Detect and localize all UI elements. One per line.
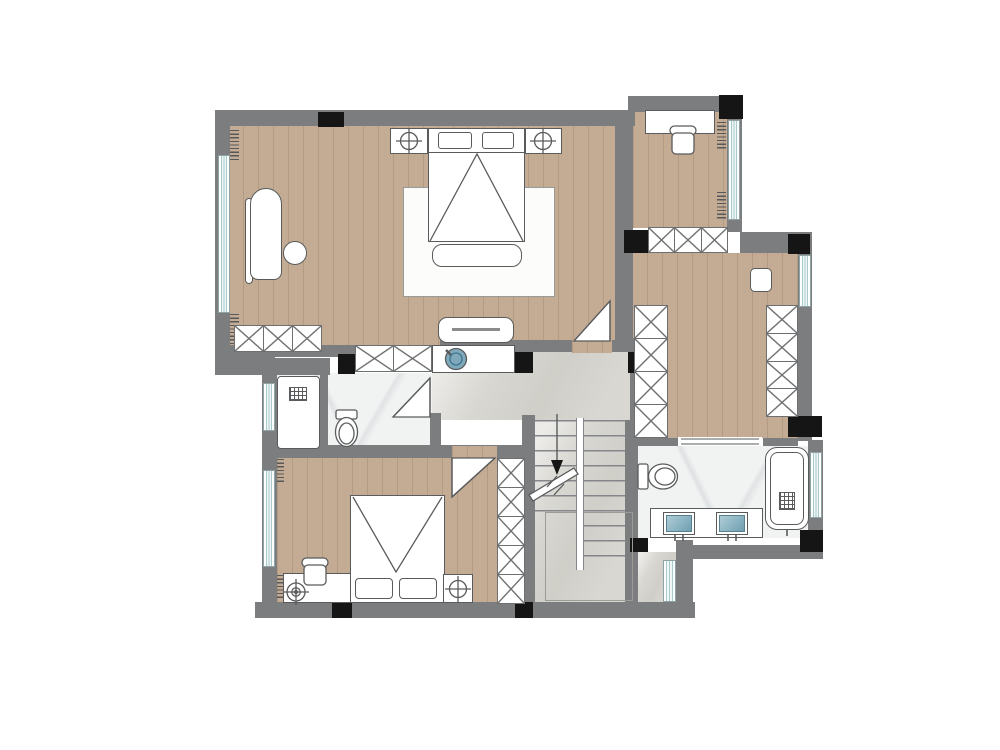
study-closet <box>648 227 728 253</box>
pillow <box>355 578 393 599</box>
window <box>810 452 822 518</box>
structural-column <box>788 416 822 437</box>
structural-column <box>515 352 533 373</box>
window <box>263 383 275 431</box>
wall-segment <box>763 438 798 446</box>
master-door-opening <box>572 339 612 353</box>
window <box>263 470 275 567</box>
low-cabinet <box>283 573 353 603</box>
wall-opening <box>678 437 762 446</box>
stair-flight-left <box>535 420 576 513</box>
closet-wardrobe-right <box>766 305 798 417</box>
wall-segment <box>255 602 695 618</box>
curtain-mark <box>717 192 726 220</box>
bathtub-inner <box>770 452 804 525</box>
foot-bench <box>432 244 522 267</box>
closet-wardrobe-left <box>634 305 668 438</box>
floor-plan <box>0 0 1000 750</box>
wall-segment <box>215 110 635 126</box>
desk <box>645 110 715 134</box>
window <box>218 155 230 313</box>
stair-stringer <box>576 418 584 570</box>
structural-column <box>515 602 533 618</box>
hall-wardrobe-strip <box>355 345 432 372</box>
wall-segment <box>632 438 678 446</box>
structural-column <box>719 95 743 119</box>
structural-column <box>624 230 648 253</box>
window <box>799 255 811 307</box>
structural-column <box>332 602 352 618</box>
window <box>728 120 740 220</box>
square-ottoman <box>750 268 772 292</box>
bedroom2-door-opening <box>452 446 497 459</box>
bedroom2-wardrobe <box>497 458 525 604</box>
curtain-mark <box>230 130 239 160</box>
curtain-mark <box>277 459 284 483</box>
basin-water <box>719 515 745 532</box>
tv-cabinet-line <box>452 328 500 331</box>
nightstand <box>443 574 473 603</box>
round-ottoman <box>283 241 307 265</box>
nightstand <box>525 128 562 154</box>
pillow <box>482 132 514 149</box>
wall-segment <box>430 413 441 447</box>
structural-column <box>338 354 355 374</box>
stair-flight-right <box>584 420 625 567</box>
structural-column <box>800 530 823 552</box>
nightstand <box>390 128 428 154</box>
structural-column <box>788 234 810 254</box>
window <box>663 560 676 602</box>
chaise-lounge <box>250 188 282 280</box>
master-wardrobe <box>234 325 322 352</box>
curtain-mark <box>717 122 726 150</box>
structural-column <box>318 112 344 127</box>
shower-drain <box>289 387 307 401</box>
double-bed <box>428 152 525 242</box>
shower-divider-wall <box>320 373 328 450</box>
vanity-counter <box>432 345 515 373</box>
basin-water <box>666 515 692 532</box>
pillow <box>438 132 472 149</box>
pillow <box>399 578 437 599</box>
bathtub-drain <box>779 492 795 510</box>
